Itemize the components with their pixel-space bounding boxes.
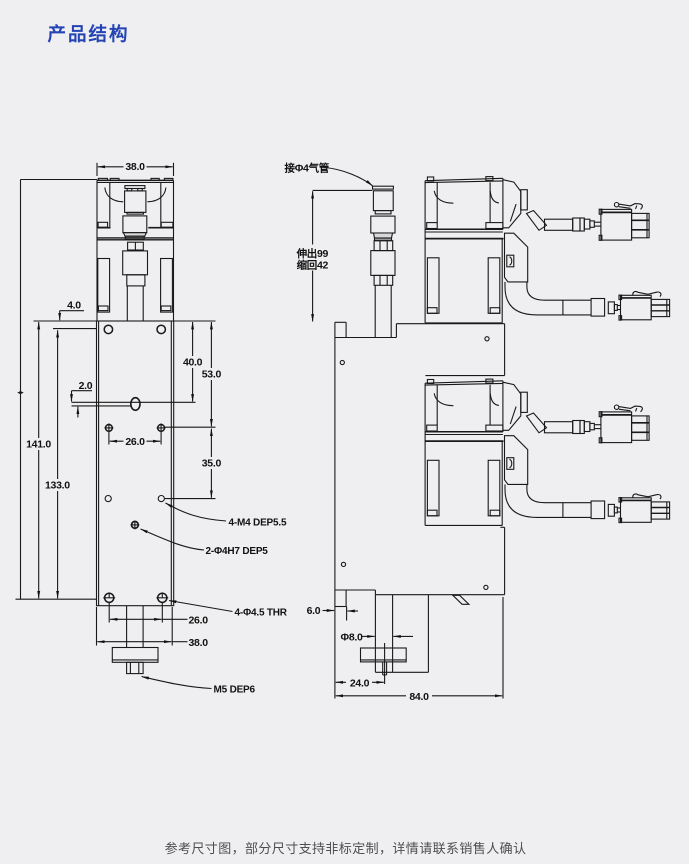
svg-text:伸出99: 伸出99 bbox=[296, 247, 329, 260]
svg-text:26.0: 26.0 bbox=[189, 615, 209, 627]
svg-text:141.0: 141.0 bbox=[26, 439, 51, 451]
svg-text:产品结构: 产品结构 bbox=[48, 24, 130, 45]
svg-text:2-Φ4H7 DEP5: 2-Φ4H7 DEP5 bbox=[206, 546, 269, 557]
svg-text:接Φ4气管: 接Φ4气管 bbox=[285, 162, 330, 175]
svg-text:参考尺寸图，部分尺寸支持非标定制，详情请联系销售人确认: 参考尺寸图，部分尺寸支持非标定制，详情请联系销售人确认 bbox=[165, 841, 527, 856]
svg-text:4-M4 DEP5.5: 4-M4 DEP5.5 bbox=[229, 518, 287, 529]
svg-text:40.0: 40.0 bbox=[183, 357, 203, 369]
svg-text:133.0: 133.0 bbox=[45, 480, 70, 492]
svg-text:35.0: 35.0 bbox=[202, 458, 222, 470]
svg-text:24.0: 24.0 bbox=[350, 677, 370, 689]
svg-text:4-Φ4.5 THR: 4-Φ4.5 THR bbox=[235, 608, 288, 619]
svg-text:26.0: 26.0 bbox=[125, 436, 145, 448]
svg-text:53.0: 53.0 bbox=[202, 369, 222, 381]
svg-text:4.0: 4.0 bbox=[67, 300, 81, 312]
svg-text:6.0: 6.0 bbox=[307, 605, 321, 617]
svg-text:M5 DEP6: M5 DEP6 bbox=[214, 685, 256, 696]
svg-text:38.0: 38.0 bbox=[125, 161, 145, 173]
svg-text:Φ8.0: Φ8.0 bbox=[341, 632, 363, 644]
svg-text:38.0: 38.0 bbox=[189, 637, 209, 649]
svg-text:84.0: 84.0 bbox=[409, 691, 429, 703]
svg-text:缩回42: 缩回42 bbox=[297, 259, 329, 272]
